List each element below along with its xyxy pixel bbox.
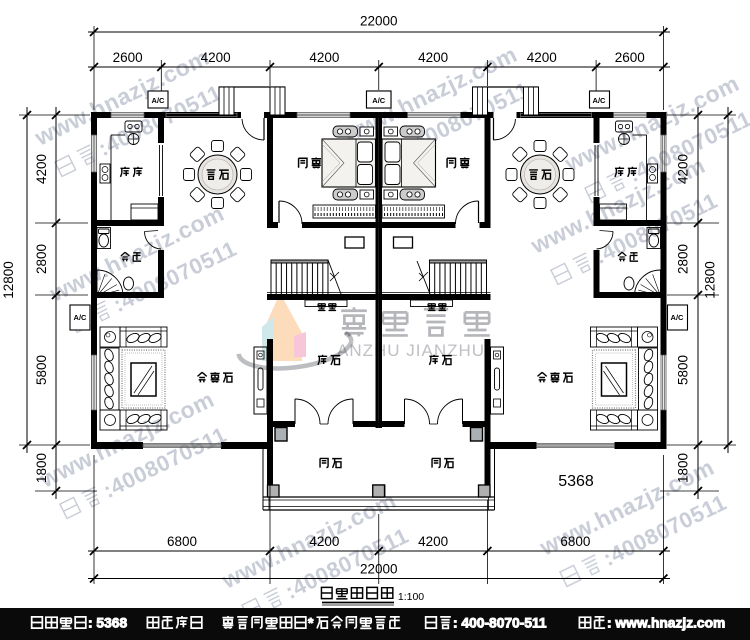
svg-text:A/C: A/C — [671, 313, 685, 322]
svg-text:12800: 12800 — [703, 261, 718, 299]
svg-text:5800: 5800 — [34, 355, 49, 385]
svg-text:4200: 4200 — [201, 50, 231, 65]
svg-text:2600: 2600 — [113, 50, 143, 65]
svg-text:4200: 4200 — [527, 50, 557, 65]
svg-text:4200: 4200 — [418, 50, 448, 65]
svg-text:4200: 4200 — [309, 50, 339, 65]
svg-text:A/C: A/C — [372, 96, 386, 105]
svg-text:*: * — [308, 616, 314, 631]
svg-text:2800: 2800 — [676, 244, 691, 274]
svg-text:2800: 2800 — [34, 244, 49, 274]
svg-text:: www.hnazjz.com: : www.hnazjz.com — [607, 616, 725, 631]
svg-text:5800: 5800 — [676, 355, 691, 385]
svg-text:4200: 4200 — [676, 154, 691, 184]
svg-text:4200: 4200 — [309, 534, 339, 549]
svg-text:6800: 6800 — [167, 534, 197, 549]
svg-text:5368: 5368 — [558, 473, 594, 490]
svg-text:4200: 4200 — [34, 154, 49, 184]
svg-text:22000: 22000 — [360, 14, 398, 29]
svg-text:A/C: A/C — [152, 96, 166, 105]
svg-text:: 400-8070-511: : 400-8070-511 — [453, 616, 547, 631]
svg-text:A/C: A/C — [593, 96, 607, 105]
svg-text:6800: 6800 — [560, 534, 590, 549]
svg-text:12800: 12800 — [1, 261, 16, 299]
svg-text:4200: 4200 — [418, 534, 448, 549]
svg-text:1800: 1800 — [34, 453, 49, 483]
svg-text:2600: 2600 — [615, 50, 645, 65]
svg-text:: 5368: : 5368 — [88, 616, 127, 631]
svg-text:1800: 1800 — [676, 453, 691, 483]
svg-text:1:100: 1:100 — [398, 591, 424, 603]
svg-text:A/C: A/C — [74, 313, 88, 322]
svg-text:ANZHU JIANZHU: ANZHU JIANZHU — [337, 341, 485, 360]
